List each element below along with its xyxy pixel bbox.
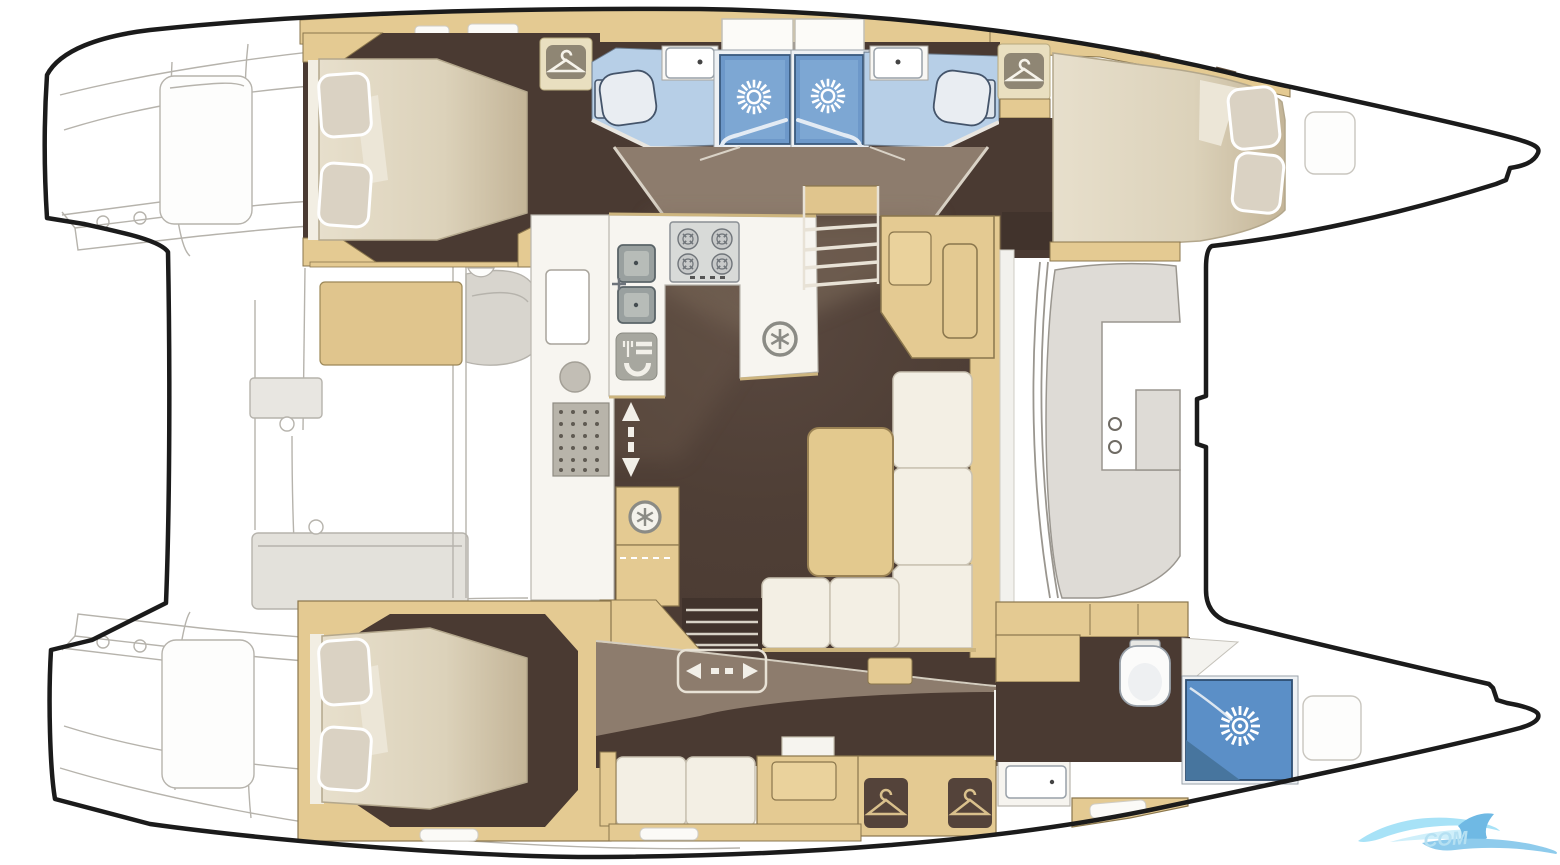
svg-text:COM: COM bbox=[1423, 828, 1470, 852]
